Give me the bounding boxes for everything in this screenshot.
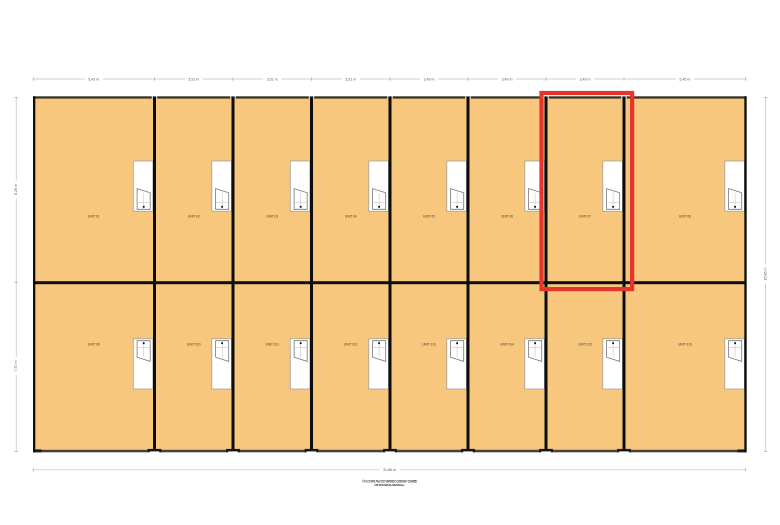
svg-text:31,86 m: 31,86 m	[383, 468, 396, 472]
svg-text:8,29 m: 8,29 m	[14, 184, 18, 195]
svg-text:3,49 m: 3,49 m	[424, 77, 435, 81]
svg-text:UNIT 06: UNIT 06	[501, 214, 513, 218]
svg-text:3,51 m: 3,51 m	[345, 77, 356, 81]
svg-text:3,51 m: 3,51 m	[267, 77, 278, 81]
svg-text:UNIT 07: UNIT 07	[579, 214, 591, 218]
svg-text:UNIT 09: UNIT 09	[88, 342, 100, 346]
svg-text:UNIT 012: UNIT 012	[344, 342, 358, 346]
svg-text:GROSS INTERNAL AREA 510 sq m: GROSS INTERNAL AREA 510 sq m	[374, 483, 406, 487]
svg-text:5,45 m: 5,45 m	[679, 77, 690, 81]
svg-text:5,43 m: 5,43 m	[88, 77, 99, 81]
svg-text:UNIT 04: UNIT 04	[345, 214, 357, 218]
svg-text:UNIT 01: UNIT 01	[88, 214, 100, 218]
svg-text:UNIT 014: UNIT 014	[500, 342, 514, 346]
svg-text:3,49 m: 3,49 m	[502, 77, 513, 81]
svg-text:UNIT 015: UNIT 015	[578, 342, 592, 346]
svg-text:UNIT 011: UNIT 011	[266, 342, 280, 346]
svg-text:15,86 m: 15,86 m	[764, 268, 768, 281]
svg-text:UNIT 08: UNIT 08	[679, 214, 691, 218]
svg-text:3,49 m: 3,49 m	[580, 77, 591, 81]
svg-text:UNIT 016: UNIT 016	[678, 342, 692, 346]
svg-text:UNIT 013: UNIT 013	[422, 342, 436, 346]
svg-text:UNIT 05: UNIT 05	[423, 214, 435, 218]
svg-text:UNIT 03: UNIT 03	[266, 214, 278, 218]
svg-text:UNIT 010: UNIT 010	[187, 342, 201, 346]
svg-text:UNIT 02: UNIT 02	[188, 214, 200, 218]
svg-text:7,57 m: 7,57 m	[14, 361, 18, 372]
svg-text:3,51 m: 3,51 m	[188, 77, 199, 81]
